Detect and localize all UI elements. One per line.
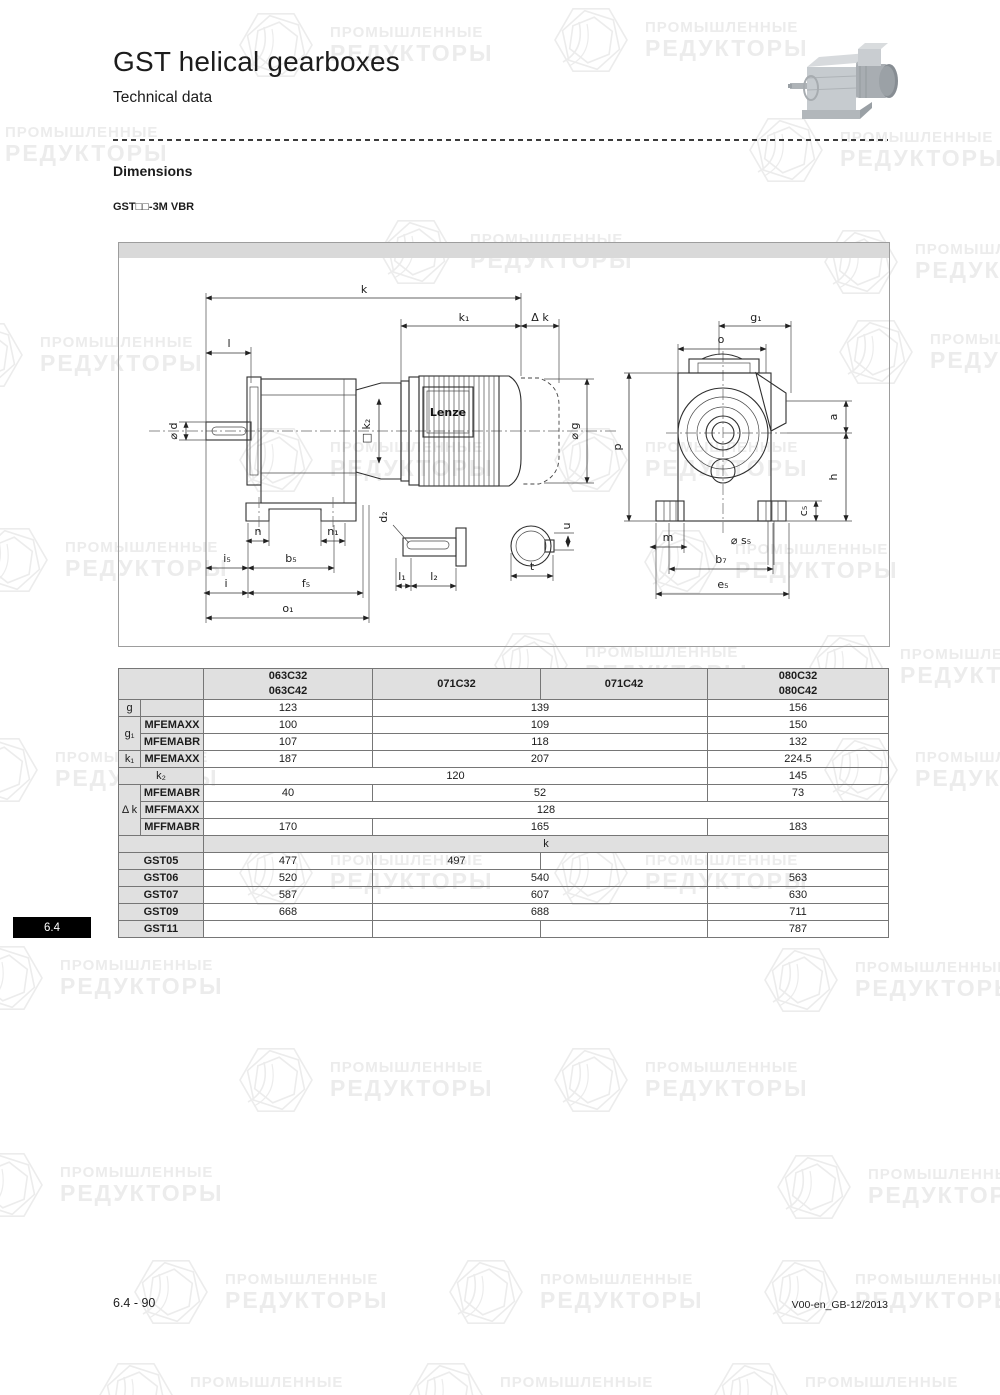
dim-label-a: a (827, 414, 840, 421)
dim-label-u: u (560, 523, 573, 530)
dim-label-f5: f₅ (302, 577, 310, 590)
cell-value: 52 (373, 785, 708, 802)
table-row: GST05 477 497 (119, 853, 889, 870)
cell-value: 207 (373, 751, 708, 768)
dim-label-p: p (611, 443, 624, 450)
row-label-gst11: GST11 (119, 921, 204, 938)
dim-label-b5: b₅ (285, 552, 296, 565)
cell-value: 120 (204, 768, 708, 785)
datasheet-page: ПРОМЫШЛЕННЫЕ РЕДУКТОРЫ ПРОМЫШЛЕННЫЕ РЕДУ… (0, 0, 1000, 1395)
cell-value: 688 (373, 904, 708, 921)
cell-value: 587 (204, 887, 373, 904)
variant-label: GST□□-3M VBR (113, 201, 194, 213)
row-sublabel: MFEMAXX (141, 751, 204, 768)
table-header-row: 063C32063C42 071C32 071C42 080C32080C42 (119, 669, 889, 700)
cell-value: 156 (708, 700, 889, 717)
cell-value: 563 (708, 870, 889, 887)
cell-value: 132 (708, 734, 889, 751)
table-row: GST07 587 607 630 (119, 887, 889, 904)
dim-label-d: ⌀ d (167, 422, 180, 439)
lenze-logo: Lenze (430, 406, 466, 419)
cell-value: 40 (204, 785, 373, 802)
table-row: k₂ 120 145 (119, 768, 889, 785)
dim-label-g1: g₁ (750, 311, 761, 324)
cell-value: 787 (708, 921, 889, 938)
table-row: GST11 787 (119, 921, 889, 938)
cell-value (708, 853, 889, 870)
dim-label-o: o (718, 333, 725, 346)
table-row: GST09 668 688 711 (119, 904, 889, 921)
gearmotor-product-image (788, 36, 906, 126)
cell-value: 187 (204, 751, 373, 768)
row-sublabel: MFEMAXX (141, 717, 204, 734)
cell-value: 520 (204, 870, 373, 887)
cell-value: 100 (204, 717, 373, 734)
dim-label-m: m (663, 531, 674, 544)
dim-label-k1: k₁ (459, 311, 470, 324)
row-label-gst05: GST05 (119, 853, 204, 870)
cell-value: 170 (204, 819, 373, 836)
row-label-k2: k₂ (119, 768, 204, 785)
cell-value: 128 (204, 802, 889, 819)
cell-value: 118 (373, 734, 708, 751)
cell-value: 183 (708, 819, 889, 836)
cell-value: 477 (204, 853, 373, 870)
dim-label-o1: o₁ (282, 602, 293, 615)
dim-label-c5: c₅ (797, 506, 810, 516)
section-label-k: k (204, 836, 889, 853)
row-label-dk: Δ k (119, 785, 141, 836)
row-label-k1: k₁ (119, 751, 141, 768)
page-subtitle: Technical data (113, 89, 212, 107)
dim-label-h: h (827, 473, 840, 480)
page-number: 6.4 - 90 (113, 1296, 155, 1310)
cell-value (204, 921, 373, 938)
row-sublabel: MFFMAXX (141, 802, 204, 819)
dimension-drawing-figure: Lenze k k₁ Δ k l (118, 242, 890, 647)
table-row: GST06 520 540 563 (119, 870, 889, 887)
row-label-g1: g₁ (119, 717, 141, 751)
cell-value: 123 (204, 700, 373, 717)
dim-label-i: i (224, 577, 227, 590)
cell-value: 139 (373, 700, 708, 717)
chapter-tab: 6.4 (13, 917, 91, 938)
cell-value: 630 (708, 887, 889, 904)
page-title: GST helical gearboxes (113, 46, 400, 78)
cell-value: 73 (708, 785, 889, 802)
col-header-071c42: 071C42 (541, 669, 708, 700)
table-row: MFEMABR 107 118 132 (119, 734, 889, 751)
row-sublabel: MFEMABR (141, 785, 204, 802)
cell-value: 497 (373, 853, 541, 870)
dim-label-n1: n₁ (327, 525, 338, 538)
row-label-gst09: GST09 (119, 904, 204, 921)
cell-value: 540 (373, 870, 708, 887)
dim-label-t: t (530, 560, 535, 573)
cell-value: 607 (373, 887, 708, 904)
col-header-080: 080C32080C42 (708, 669, 889, 700)
row-label-gst07: GST07 (119, 887, 204, 904)
dim-label-d2: d₂ (377, 511, 390, 522)
row-sublabel: MFEMABR (141, 734, 204, 751)
cell-value (541, 853, 708, 870)
dim-label-g: ⌀ g (568, 422, 581, 439)
dim-label-dk: Δ k (531, 311, 549, 324)
cell-value: 668 (204, 904, 373, 921)
dim-label-k2: □ k₂ (360, 419, 373, 444)
row-sublabel: MFFMABR (141, 819, 204, 836)
figure-top-bar (119, 243, 889, 258)
technical-drawing: Lenze k k₁ Δ k l (119, 243, 889, 646)
row-label-gst06: GST06 (119, 870, 204, 887)
dimensions-table: 063C32063C42 071C32 071C42 080C32080C42 … (118, 668, 889, 938)
cell-value: 224.5 (708, 751, 889, 768)
document-version: V00-en_GB-12/2013 (788, 1299, 888, 1311)
dim-label-l2: l₂ (430, 570, 437, 583)
col-header-063: 063C32063C42 (204, 669, 373, 700)
cell-value: 165 (373, 819, 708, 836)
table-section-row: k (119, 836, 889, 853)
cell-value: 145 (708, 768, 889, 785)
dim-label-b7: b₇ (715, 553, 726, 566)
dashed-divider (113, 139, 888, 141)
cell-value: 150 (708, 717, 889, 734)
table-row: g 123 139 156 (119, 700, 889, 717)
cell-value: 109 (373, 717, 708, 734)
table-row: Δ k MFEMABR 40 52 73 (119, 785, 889, 802)
dim-label-e5: e₅ (717, 578, 728, 591)
table-row: g₁ MFEMAXX 100 109 150 (119, 717, 889, 734)
dim-label-n: n (255, 525, 262, 538)
cell-value: 711 (708, 904, 889, 921)
cell-value (373, 921, 541, 938)
table-row: MFFMAXX 128 (119, 802, 889, 819)
table-row: MFFMABR 170 165 183 (119, 819, 889, 836)
table-row: k₁ MFEMAXX 187 207 224.5 (119, 751, 889, 768)
cell-value (541, 921, 708, 938)
col-header-071c32: 071C32 (373, 669, 541, 700)
dim-label-i5: i₅ (223, 552, 230, 565)
dimensions-heading: Dimensions (113, 163, 192, 179)
row-label-g: g (119, 700, 141, 717)
row-sublabel (141, 700, 204, 717)
dim-label-k: k (361, 283, 368, 296)
dim-label-l: l (227, 337, 230, 350)
cell-value: 107 (204, 734, 373, 751)
dim-label-l1: l₁ (398, 570, 405, 583)
dim-label-s5: ⌀ s₅ (731, 534, 751, 547)
